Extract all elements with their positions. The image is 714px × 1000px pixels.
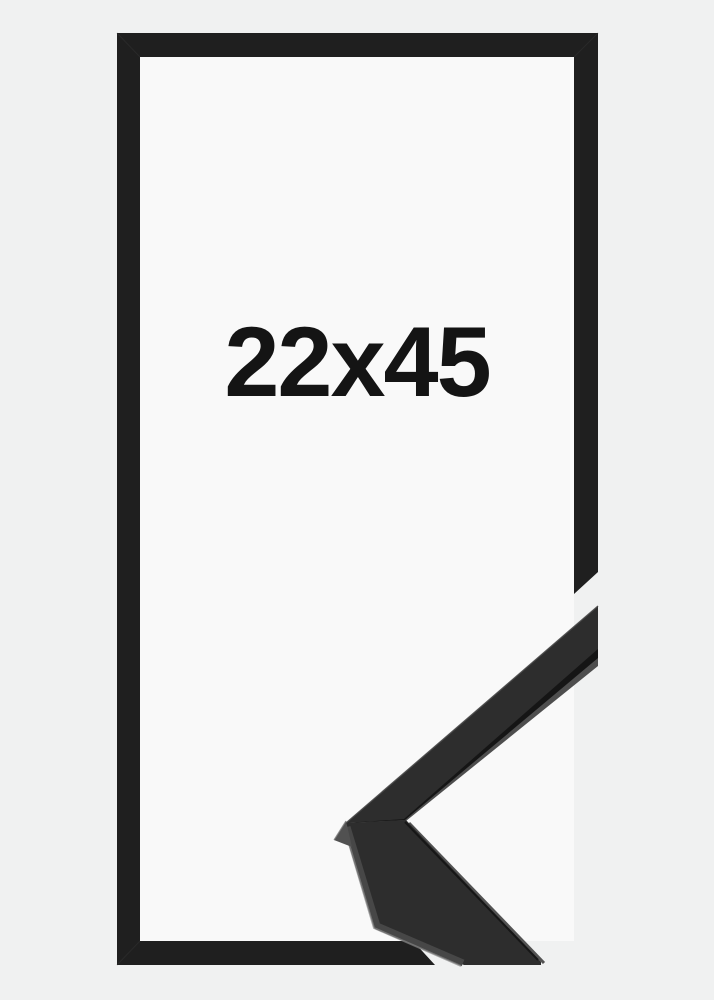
size-label: 22x45 [224, 306, 489, 417]
frame-product-image: 22x45 [0, 0, 714, 1000]
frame-backing-area [140, 57, 574, 941]
frame-product-photo: 22x45 [0, 0, 714, 1000]
